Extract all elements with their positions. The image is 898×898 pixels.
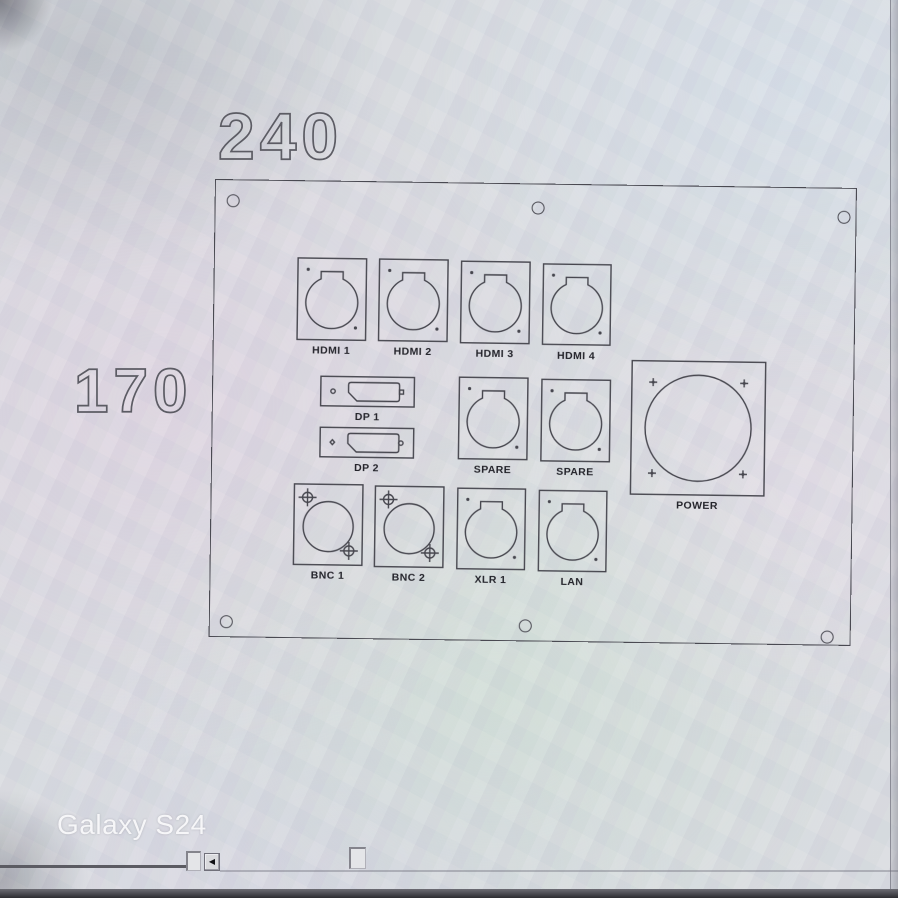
connector-power: POWER xyxy=(630,360,767,497)
connector-hdmi-2: HDMI 2 xyxy=(378,258,449,342)
round-power-cutout-icon xyxy=(630,360,767,497)
xlr-d-cutout-icon xyxy=(378,258,449,342)
connector-hdmi-3: HDMI 3 xyxy=(460,260,531,344)
connector-label: DP 1 xyxy=(310,410,425,424)
connector-dp-2: DP 2 xyxy=(319,426,414,458)
xlr-d-cutout-icon xyxy=(542,263,612,347)
connector-label: HDMI 3 xyxy=(450,347,540,360)
connector-hdmi-4: HDMI 4 xyxy=(542,263,612,347)
connector-label: SPARE xyxy=(447,463,538,476)
xlr-d-cutout-icon xyxy=(296,257,368,341)
bnc-cutout-icon xyxy=(374,485,445,568)
dimension-width: 240 xyxy=(218,98,343,174)
connector-label: DP 2 xyxy=(309,461,424,475)
mounting-hole-bottom-left xyxy=(220,615,233,628)
xlr-d-cutout-icon xyxy=(538,490,608,573)
scroll-left-button[interactable]: ◀ xyxy=(204,853,220,871)
displayport-cutout-icon xyxy=(320,375,415,407)
xlr-d-cutout-icon xyxy=(540,379,611,463)
bnc-cutout-icon xyxy=(293,483,364,566)
xlr-d-cutout-icon xyxy=(456,487,527,570)
connector-label: HDMI 4 xyxy=(531,349,620,362)
displayport-cutout-icon xyxy=(319,426,414,458)
connector-label: XLR 1 xyxy=(445,573,535,586)
mounting-hole-top-right xyxy=(837,211,850,224)
xlr-d-cutout-icon xyxy=(457,376,529,460)
connector-label: SPARE xyxy=(530,465,620,478)
mounting-hole-bottom-right xyxy=(821,631,834,644)
connector-label: BNC 2 xyxy=(363,571,453,584)
dimension-height: 170 xyxy=(74,356,192,427)
connector-spare-1: SPARE xyxy=(457,376,529,460)
camera-watermark: Galaxy S24 xyxy=(57,809,207,841)
scrollbar-thumb[interactable] xyxy=(186,851,201,871)
connector-label: POWER xyxy=(619,499,774,513)
connector-lan: LAN xyxy=(538,490,608,573)
connector-spare-2: SPARE xyxy=(540,379,611,463)
scrollbar-track-left[interactable] xyxy=(0,865,186,868)
connector-bnc-2: BNC 2 xyxy=(374,485,445,568)
panel-outline: HDMI 1 HDMI 2 HDMI 3 HDMI 4 xyxy=(209,179,857,646)
scroll-left-arrow-icon: ◀ xyxy=(209,858,215,866)
window-right-edge xyxy=(890,0,898,889)
mounting-hole-bottom-middle xyxy=(519,619,532,632)
connector-label: LAN xyxy=(527,575,616,588)
connector-label: BNC 1 xyxy=(282,569,372,582)
connector-bnc-1: BNC 1 xyxy=(293,483,364,566)
scrollbar-handle[interactable] xyxy=(349,847,366,869)
xlr-d-cutout-icon xyxy=(460,260,531,344)
connector-dp-1: DP 1 xyxy=(320,375,415,407)
connector-label: HDMI 1 xyxy=(286,344,377,357)
mounting-hole-top-left xyxy=(227,194,240,207)
screen-bottom-bezel xyxy=(0,889,898,898)
connector-label: HDMI 2 xyxy=(368,345,458,358)
connector-hdmi-1: HDMI 1 xyxy=(296,257,368,341)
connector-xlr-1: XLR 1 xyxy=(456,487,527,570)
mounting-hole-top-middle xyxy=(532,201,545,214)
scrollbar-track-right[interactable] xyxy=(220,870,898,872)
